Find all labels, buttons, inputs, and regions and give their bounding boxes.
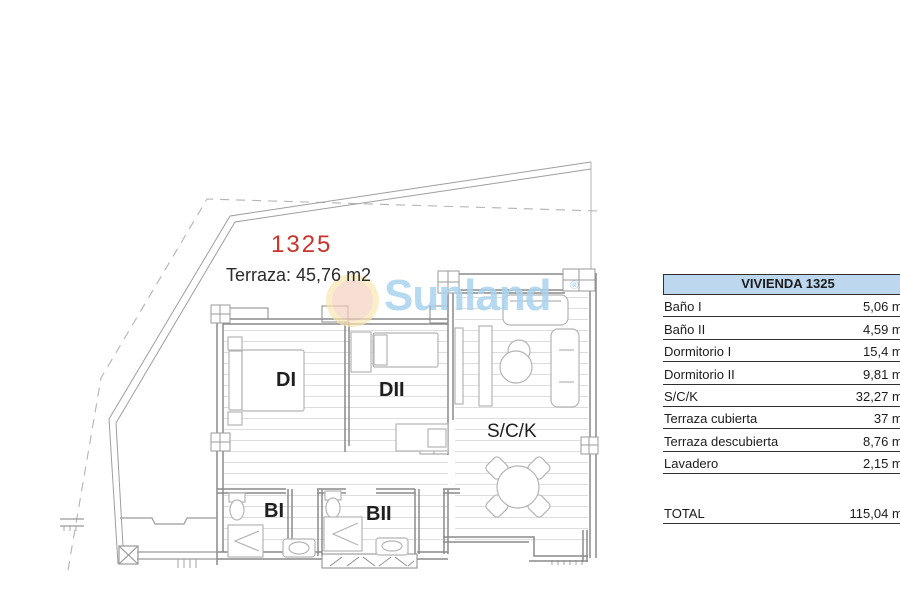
row-label: Terraza descubierta: [664, 434, 778, 449]
table-row: Terraza cubierta 37 m2: [663, 407, 900, 429]
room-label-bano-1: BI: [264, 500, 284, 523]
watermark-text: Sunland: [384, 274, 551, 318]
row-value: 8,76 m2: [863, 434, 900, 449]
row-value: 4,59 m2: [863, 322, 900, 337]
unit-number-label: 1325: [271, 231, 332, 259]
table-row: Dormitorio II 9,81 m2: [663, 362, 900, 384]
table-row: S/C/K 32,27 m2: [663, 385, 900, 407]
table-row: Baño II 4,59 m2: [663, 317, 900, 339]
terrace-details: [60, 518, 217, 568]
table-row: Lavadero 2,15 m2: [663, 452, 900, 474]
table-row: Baño I 5,06 m2: [663, 295, 900, 317]
floorplan-page: Sunland ® 1325 Terraza: 45,76 m2 DI DII …: [0, 0, 900, 600]
registered-mark: ®: [570, 278, 579, 292]
room-label-dormitorio-1: DI: [276, 369, 296, 392]
total-label: TOTAL: [664, 506, 705, 521]
row-value: 9,81 m2: [863, 367, 900, 382]
table-row: Terraza descubierta 8,76 m2: [663, 429, 900, 451]
room-label-salon-cocina: S/C/K: [487, 421, 537, 443]
row-value: 5,06 m2: [863, 299, 900, 314]
row-value: 32,27 m2: [856, 389, 900, 404]
row-label: Dormitorio II: [664, 367, 735, 382]
row-value: 15,4 m2: [863, 344, 900, 359]
table-header: VIVIENDA 1325: [663, 274, 900, 295]
row-label: Dormitorio I: [664, 344, 731, 359]
row-label: Lavadero: [664, 456, 718, 471]
row-label: Baño II: [664, 322, 705, 337]
row-label: S/C/K: [664, 389, 698, 404]
total-value: 115,04 m2: [850, 506, 900, 521]
area-table: VIVIENDA 1325 Baño I 5,06 m2 Baño II 4,5…: [663, 274, 900, 524]
table-row: Dormitorio I 15,4 m2: [663, 340, 900, 362]
table-total-row: TOTAL 115,04 m2: [663, 501, 900, 523]
table-spacer: [663, 474, 900, 501]
row-label: Baño I: [664, 299, 702, 314]
row-value: 37 m2: [874, 411, 900, 426]
terrace-area-label: Terraza: 45,76 m2: [226, 265, 371, 286]
room-label-dormitorio-2: DII: [379, 379, 405, 402]
row-value: 2,15 m2: [863, 456, 900, 471]
row-label: Terraza cubierta: [664, 411, 757, 426]
room-label-bano-2: BII: [366, 503, 392, 526]
